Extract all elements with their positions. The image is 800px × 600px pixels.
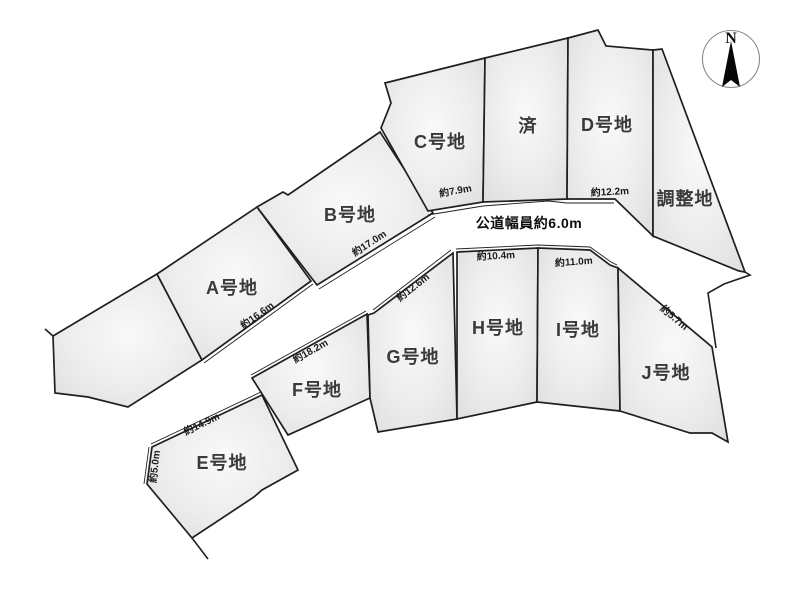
plot-sold-label: 済 [519, 115, 538, 136]
plot-j [618, 268, 728, 442]
boundary-line [192, 538, 208, 559]
plot-adjustment-label: 調整地 [657, 188, 714, 209]
plot-d-label: D号地 [581, 114, 633, 135]
plot-map-svg: A号地 B号地 C号地 済 D号地 調整地 E号地 F号地 G号地 H号地 I号… [0, 0, 800, 600]
road-end-line [708, 272, 750, 348]
road-width-label: 公道幅員約6.0m [476, 215, 582, 231]
plot-adjustment [653, 49, 745, 272]
plot-e-label: E号地 [196, 452, 247, 473]
plot-i-label: I号地 [556, 319, 600, 340]
plot-f-label: F号地 [292, 379, 342, 400]
plot-j-label: J号地 [641, 362, 690, 383]
compass: N [703, 30, 760, 88]
plot-h-label: H号地 [472, 317, 524, 338]
plot-b-label: B号地 [324, 204, 376, 225]
plot-a-label: A号地 [206, 277, 258, 298]
plot-c-label: C号地 [414, 131, 466, 152]
boundary-line [45, 329, 53, 336]
plot-g-label: G号地 [386, 346, 439, 367]
compass-needle-icon [722, 41, 740, 87]
land-plot-diagram: A号地 B号地 C号地 済 D号地 調整地 E号地 F号地 G号地 H号地 I号… [0, 0, 800, 600]
